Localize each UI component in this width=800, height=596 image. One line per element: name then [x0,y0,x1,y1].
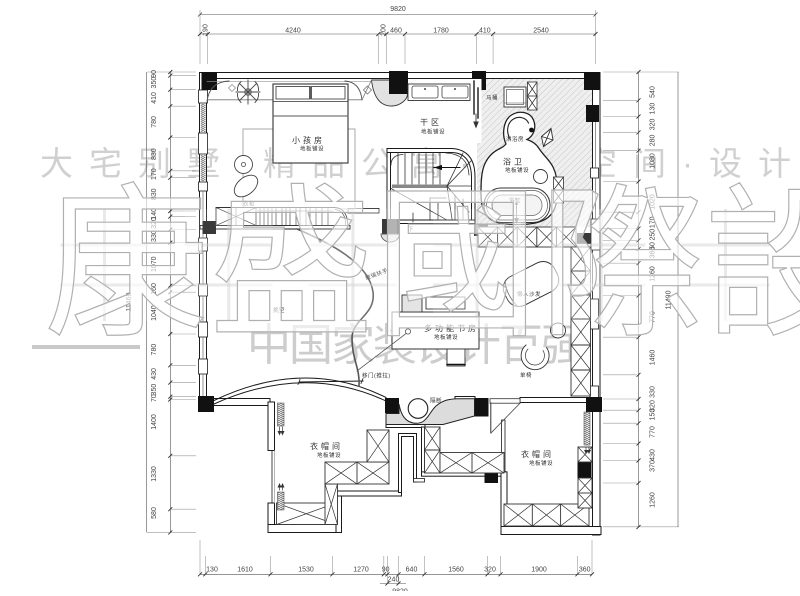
svg-text:70: 70 [151,394,158,402]
svg-text:330: 330 [650,386,657,398]
svg-text:280: 280 [650,134,657,146]
svg-text:190: 190 [203,24,210,36]
svg-text:350: 350 [151,77,158,89]
svg-text:460: 460 [390,27,402,34]
svg-text:130: 130 [650,103,657,115]
svg-text:地板铺设: 地板铺设 [317,451,341,459]
svg-text:1080: 1080 [650,153,657,169]
svg-text:320: 320 [484,567,496,574]
svg-text:1610: 1610 [237,567,253,574]
svg-text:1560: 1560 [448,567,464,574]
svg-text:410: 410 [479,27,491,34]
svg-text:单椅: 单椅 [520,371,532,379]
svg-text:衣帽间: 衣帽间 [310,441,343,451]
svg-text:580: 580 [151,507,158,519]
svg-text:地板铺设: 地板铺设 [529,459,553,467]
svg-text:150: 150 [650,409,657,421]
svg-text:640: 640 [406,567,418,574]
svg-text:90: 90 [151,70,158,78]
svg-text:430: 430 [151,368,158,380]
svg-text:1330: 1330 [151,466,158,482]
svg-text:4240: 4240 [285,27,301,34]
svg-text:1400: 1400 [151,414,158,430]
svg-text:130: 130 [206,567,218,574]
svg-text:地板铺设: 地板铺设 [421,128,445,136]
svg-text:780: 780 [151,116,158,128]
svg-text:康盛國際設計: 康盛國際設計 [44,173,800,357]
svg-text:540: 540 [650,86,657,98]
svg-text:2540: 2540 [533,27,549,34]
svg-text:410: 410 [151,92,158,104]
svg-text:马桶: 马桶 [486,94,498,102]
svg-text:9820: 9820 [390,6,406,13]
svg-text:地板铺设: 地板铺设 [300,145,324,153]
svg-text:90: 90 [382,567,390,574]
svg-text:350: 350 [151,384,158,396]
svg-text:1780: 1780 [433,27,449,34]
svg-text:830: 830 [151,148,158,160]
svg-text:240: 240 [388,577,400,584]
svg-text:1260: 1260 [650,492,657,508]
svg-text:衣帽间: 衣帽间 [521,449,554,459]
svg-text:淋浴房: 淋浴房 [506,135,524,143]
svg-text:360: 360 [579,567,591,574]
svg-text:浴卫: 浴卫 [503,157,525,167]
svg-text:320: 320 [650,118,657,130]
svg-text:430: 430 [650,449,657,461]
svg-text:770: 770 [650,426,657,438]
svg-text:200: 200 [381,24,388,36]
svg-text:小孩房: 小孩房 [292,135,325,145]
svg-text:隔断: 隔断 [430,397,442,405]
svg-text:1270: 1270 [353,567,369,574]
svg-text:1530: 1530 [298,567,314,574]
svg-text:移门(推拉): 移门(推拉) [362,372,391,380]
svg-text:干区: 干区 [420,118,442,127]
svg-text:1900: 1900 [531,567,547,574]
svg-text:370: 370 [650,460,657,472]
